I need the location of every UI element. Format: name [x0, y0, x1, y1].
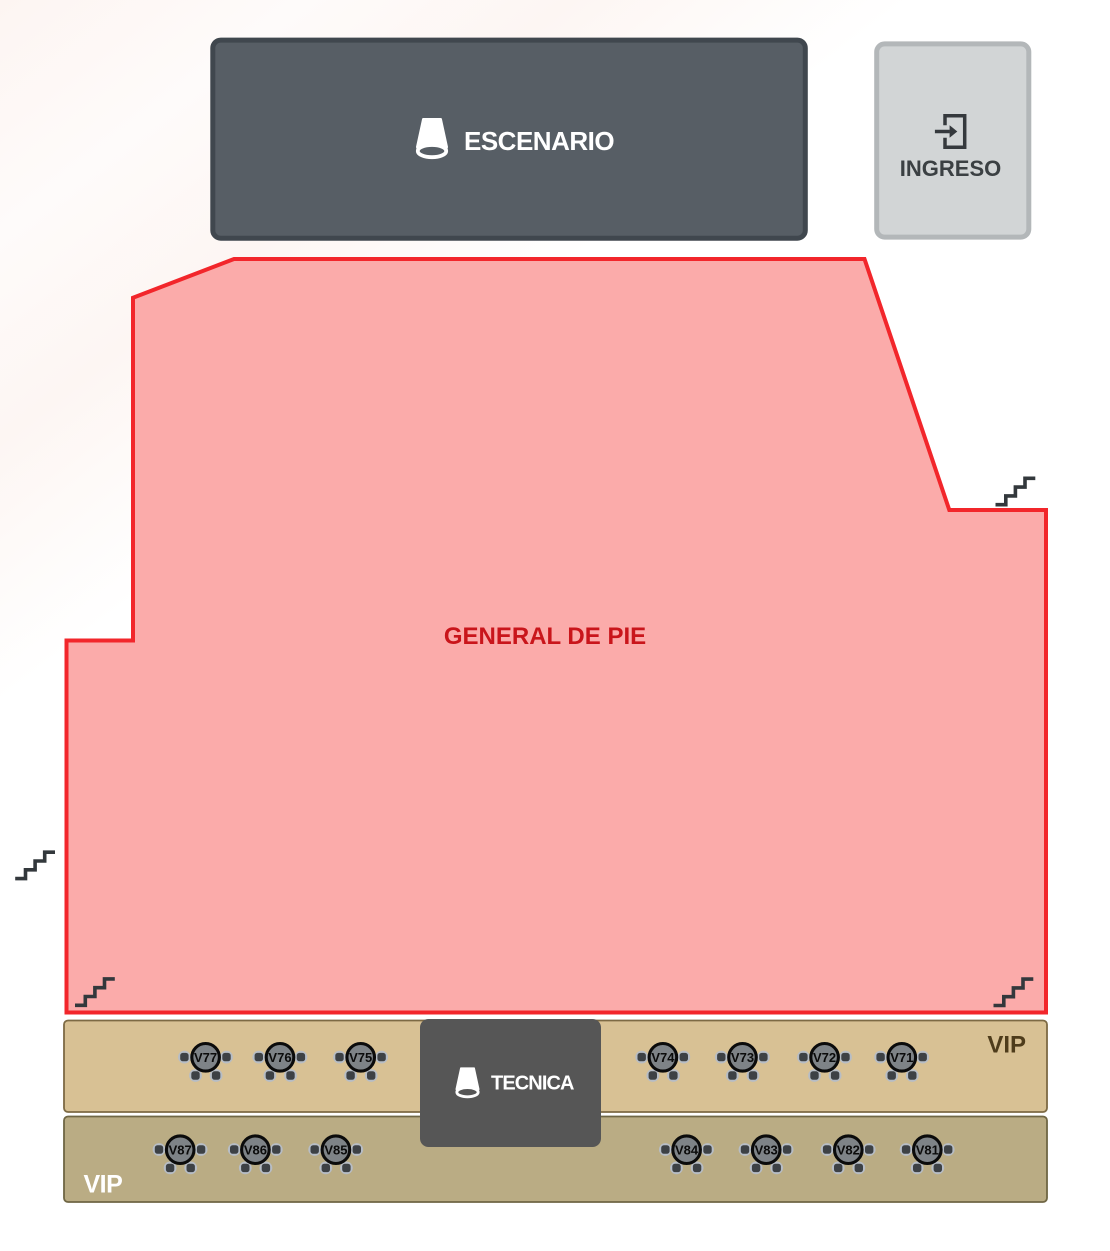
- svg-text:V86: V86: [244, 1142, 267, 1157]
- svg-text:GENERAL DE PIE: GENERAL DE PIE: [444, 623, 646, 650]
- svg-text:VIP: VIP: [84, 1171, 123, 1199]
- svg-text:V75: V75: [349, 1050, 372, 1065]
- svg-text:ESCENARIO: ESCENARIO: [464, 126, 614, 156]
- svg-text:TECNICA: TECNICA: [491, 1073, 574, 1095]
- svg-text:V74: V74: [651, 1050, 675, 1065]
- svg-text:V77: V77: [194, 1050, 217, 1065]
- svg-text:V87: V87: [169, 1142, 192, 1157]
- svg-text:VIP: VIP: [987, 1031, 1026, 1058]
- svg-text:V71: V71: [890, 1050, 913, 1065]
- svg-text:INGRESO: INGRESO: [900, 156, 1001, 181]
- svg-text:V81: V81: [916, 1142, 939, 1157]
- svg-text:V76: V76: [268, 1050, 291, 1065]
- svg-text:V82: V82: [837, 1142, 860, 1157]
- svg-text:V72: V72: [813, 1050, 836, 1065]
- svg-text:V85: V85: [324, 1142, 347, 1157]
- svg-text:V84: V84: [675, 1142, 699, 1157]
- svg-text:V73: V73: [731, 1050, 754, 1065]
- svg-text:V83: V83: [755, 1142, 778, 1157]
